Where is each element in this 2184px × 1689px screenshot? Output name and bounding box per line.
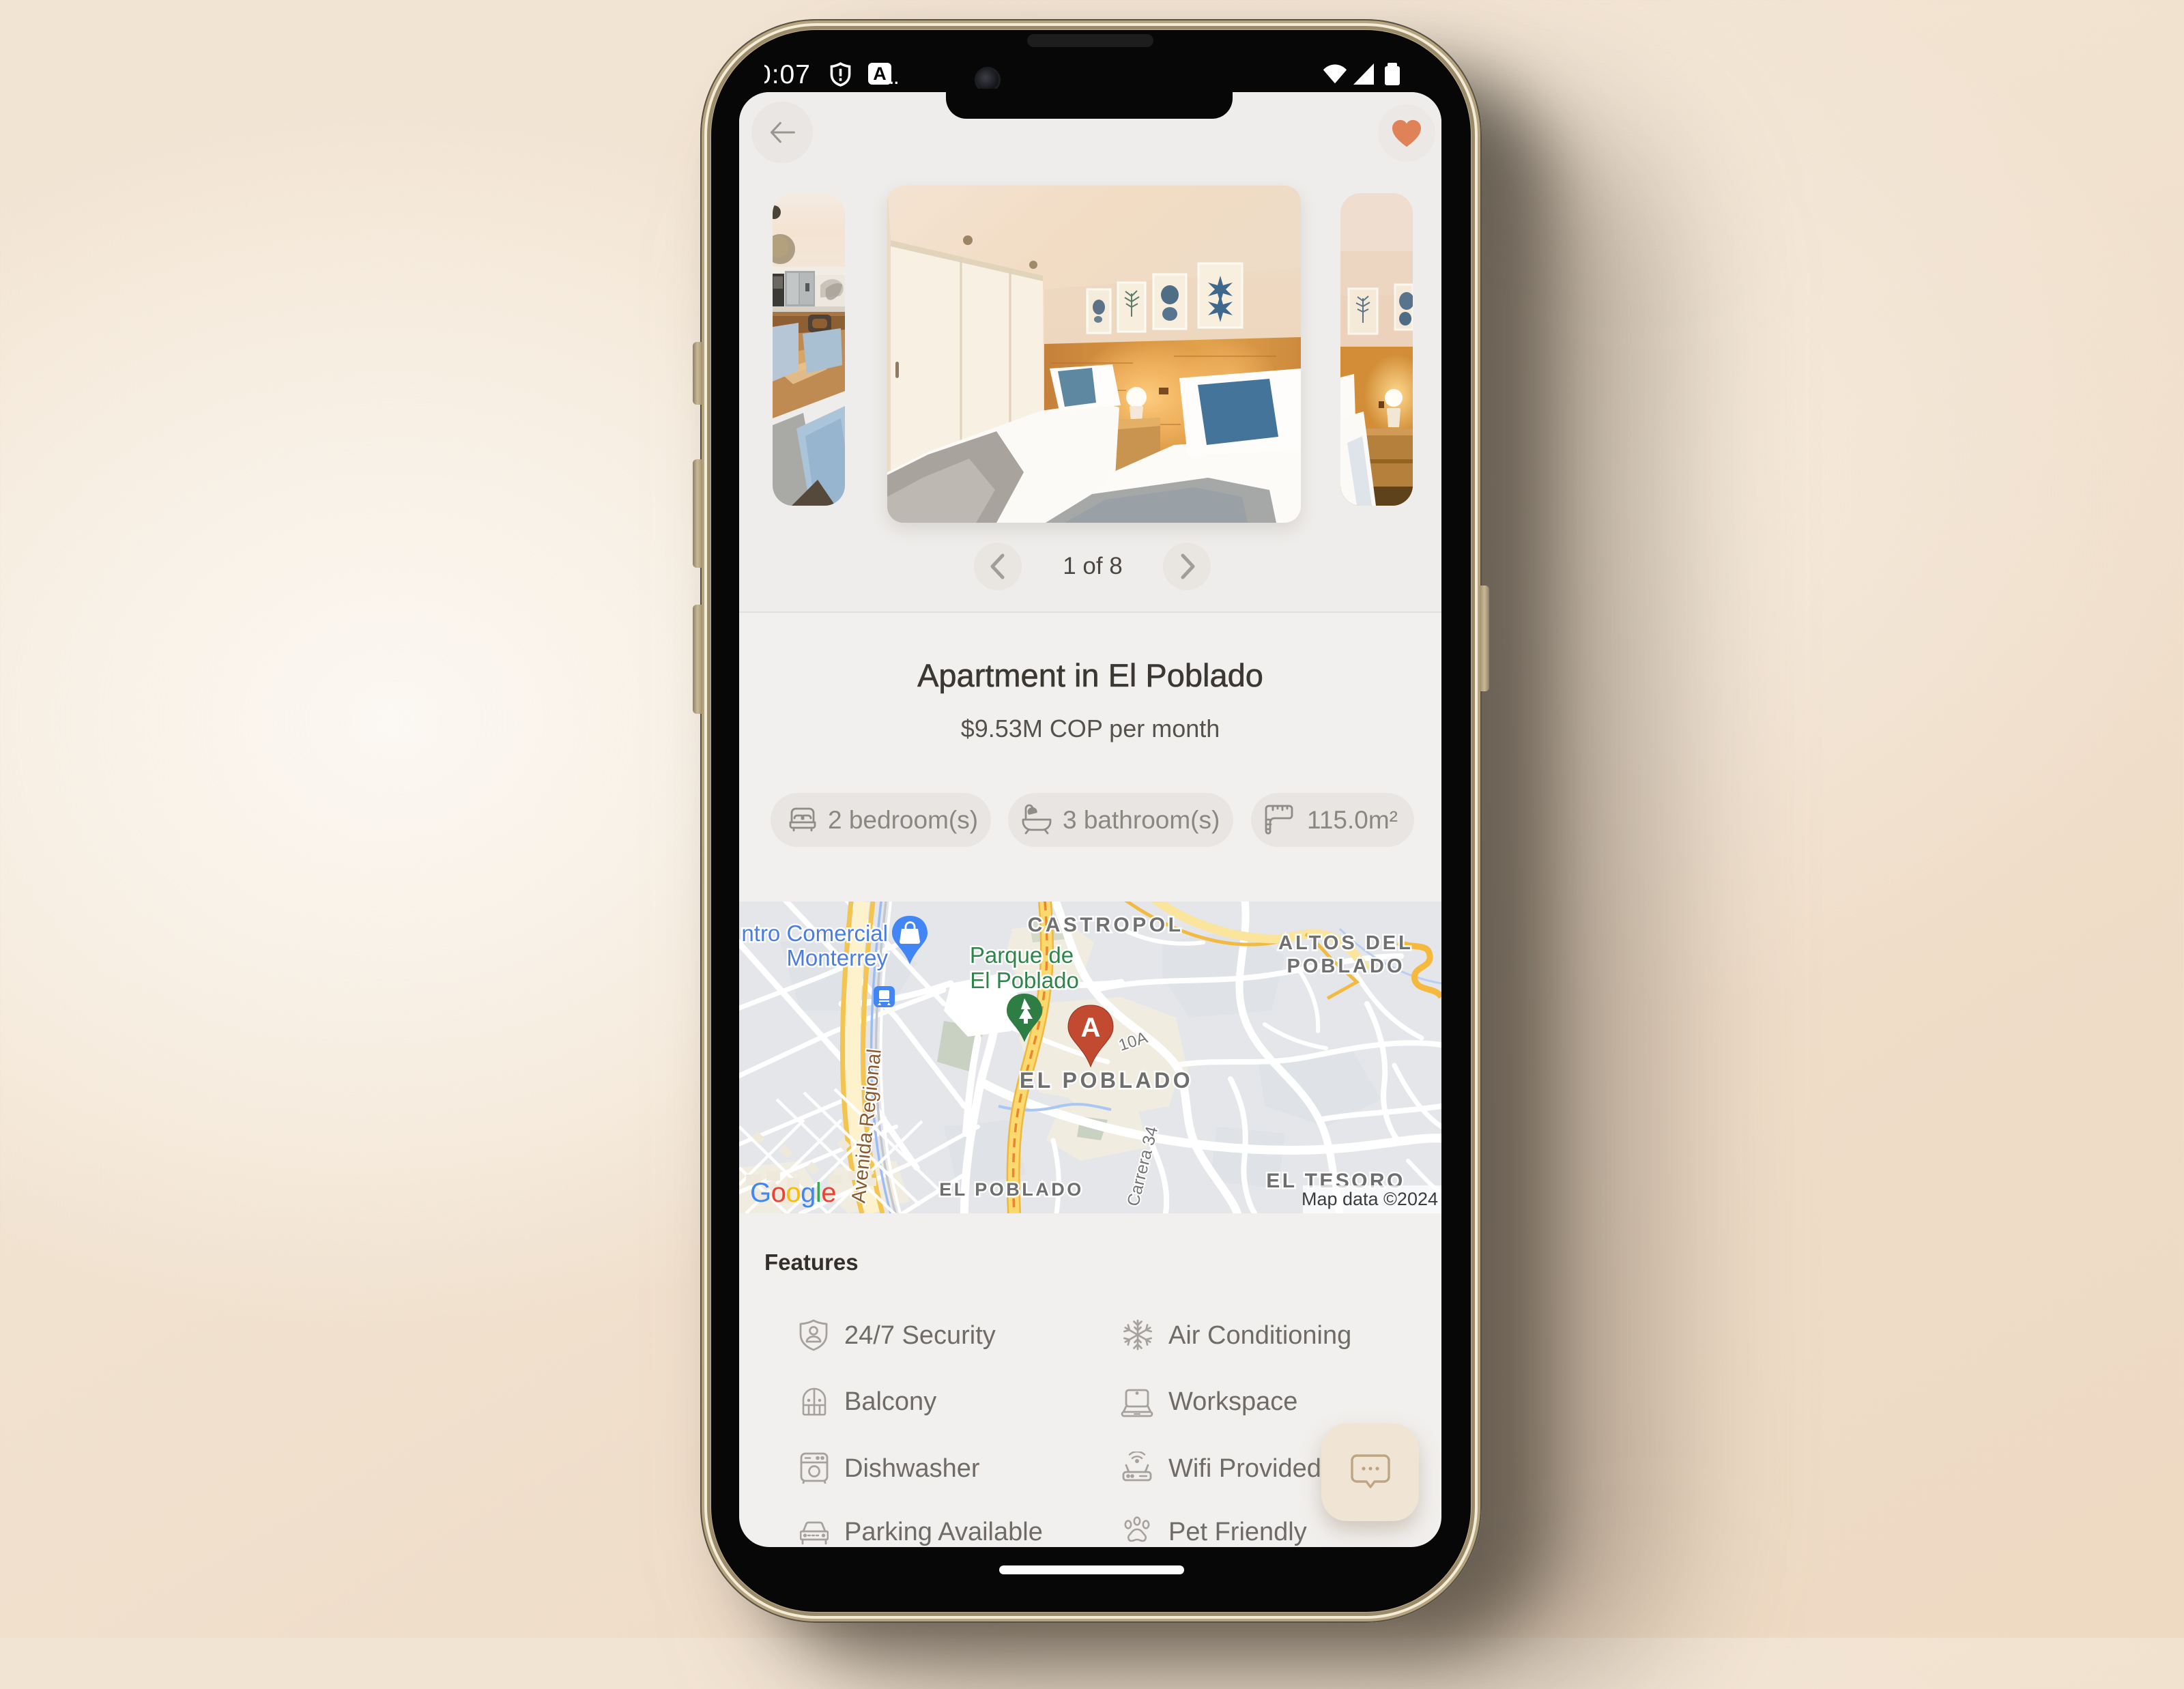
svg-text:Google: Google — [750, 1178, 836, 1208]
svg-text:Parque de: Parque de — [970, 942, 1074, 968]
svg-text:ALTOS DEL: ALTOS DEL — [1278, 932, 1413, 954]
svg-text:EL POBLADO: EL POBLADO — [939, 1179, 1084, 1200]
svg-text:ntro Comercial: ntro Comercial — [741, 921, 888, 946]
svg-text:POBLADO: POBLADO — [1287, 955, 1405, 977]
svg-text:EL POBLADO: EL POBLADO — [1020, 1068, 1193, 1093]
svg-text:A: A — [1081, 1013, 1101, 1043]
svg-text:Monterrey: Monterrey — [786, 945, 888, 970]
svg-text:El Poblado: El Poblado — [970, 968, 1079, 993]
svg-text:CASTROPOL: CASTROPOL — [1028, 914, 1184, 936]
svg-text:Map data ©2024: Map data ©2024 — [1302, 1189, 1438, 1209]
